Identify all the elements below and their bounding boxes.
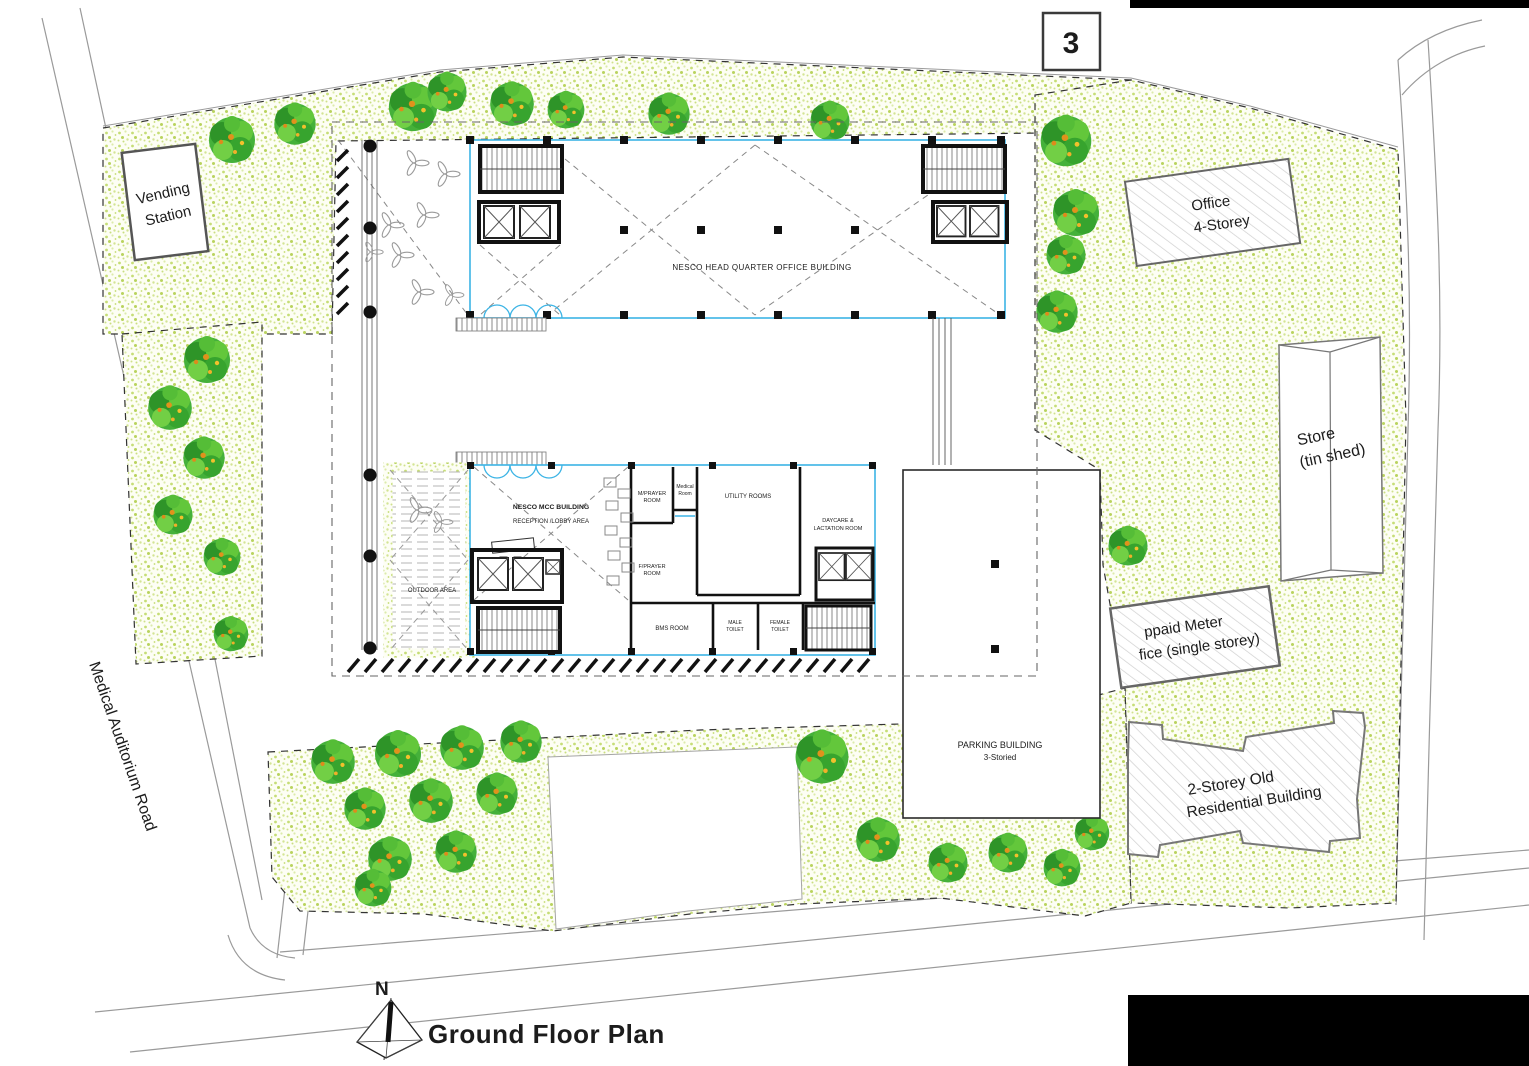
tree-icon [375, 730, 421, 777]
site-plan-drawing: PARKING BUILDING 3-Storied [0, 0, 1529, 1066]
daycare-label-2: LACTATION ROOM [814, 526, 863, 532]
store-building: Store (tin shed) [1279, 337, 1383, 581]
hq-building-label: NESCO HEAD QUARTER OFFICE BUILDING [672, 263, 851, 272]
scan-artifact-bottom [1128, 995, 1529, 1066]
medical-room-label-2: Room [678, 491, 691, 497]
north-arrow-icon: N [357, 979, 422, 1060]
outdoor-area: OUTDOOR AREA [388, 467, 470, 653]
bms-room-label: BMS ROOM [655, 626, 688, 632]
f-prayer-label-2: ROOM [643, 571, 661, 577]
tree-icon [500, 720, 541, 762]
right-road [1396, 20, 1485, 940]
medical-room-label-1: Medical [676, 484, 693, 490]
male-toilet-label-1: MALE [728, 620, 742, 626]
left-road-label: Medical Auditorium Road [85, 660, 159, 834]
female-toilet-label-1: FEMALE [770, 620, 791, 626]
utility-rooms-label: UTILITY ROOMS [725, 494, 772, 500]
parking-building: PARKING BUILDING 3-Storied [903, 470, 1100, 818]
page-number-badge: 3 [1043, 13, 1100, 70]
vending-station: Vending Station [122, 144, 209, 260]
courtyard-columns [364, 140, 377, 655]
plan-title: Ground Floor Plan [428, 1019, 665, 1049]
hq-stair-core-left [480, 146, 562, 192]
mcc-name-label: NESCO MCC BUILDING [513, 504, 589, 511]
outdoor-area-label: OUTDOOR AREA [408, 588, 456, 594]
mcc-stairs-left [478, 608, 560, 652]
parking-label-line1: PARKING BUILDING [958, 740, 1043, 750]
page-number-text: 3 [1063, 27, 1080, 60]
male-toilet-label-2: TOILET [726, 627, 743, 633]
bottom-open-ground [548, 747, 802, 929]
plaza [456, 318, 951, 465]
courtyard-plants [364, 149, 463, 306]
f-prayer-label-1: F/PRAYER [638, 564, 665, 570]
north-label: N [375, 979, 389, 1000]
hq-lift-bank-left [479, 202, 559, 242]
left-road-label-group: Medical Auditorium Road [85, 660, 159, 834]
hq-stair-core-right [923, 146, 1005, 192]
m-prayer-label-2: ROOM [643, 498, 661, 504]
mcc-building: NESCO MCC BUILDING RECEPTION /LOBBY AREA… [467, 462, 876, 655]
mcc-stairs-right [806, 606, 871, 650]
tree-icon [311, 739, 355, 784]
daycare-label-1: DAYCARE & [822, 518, 854, 524]
m-prayer-label-1: M/PRAYER [638, 491, 666, 497]
mcc-reception-label: RECEPTION /LOBBY AREA [513, 519, 589, 525]
scan-artifact-top [1130, 0, 1529, 8]
tree-icon [440, 725, 484, 770]
female-toilet-label-2: TOILET [771, 627, 788, 633]
hq-lift-bank-right [933, 202, 1007, 242]
site-plan-canvas: PARKING BUILDING 3-Storied [0, 0, 1529, 1066]
parking-label-line2: 3-Storied [984, 753, 1016, 762]
